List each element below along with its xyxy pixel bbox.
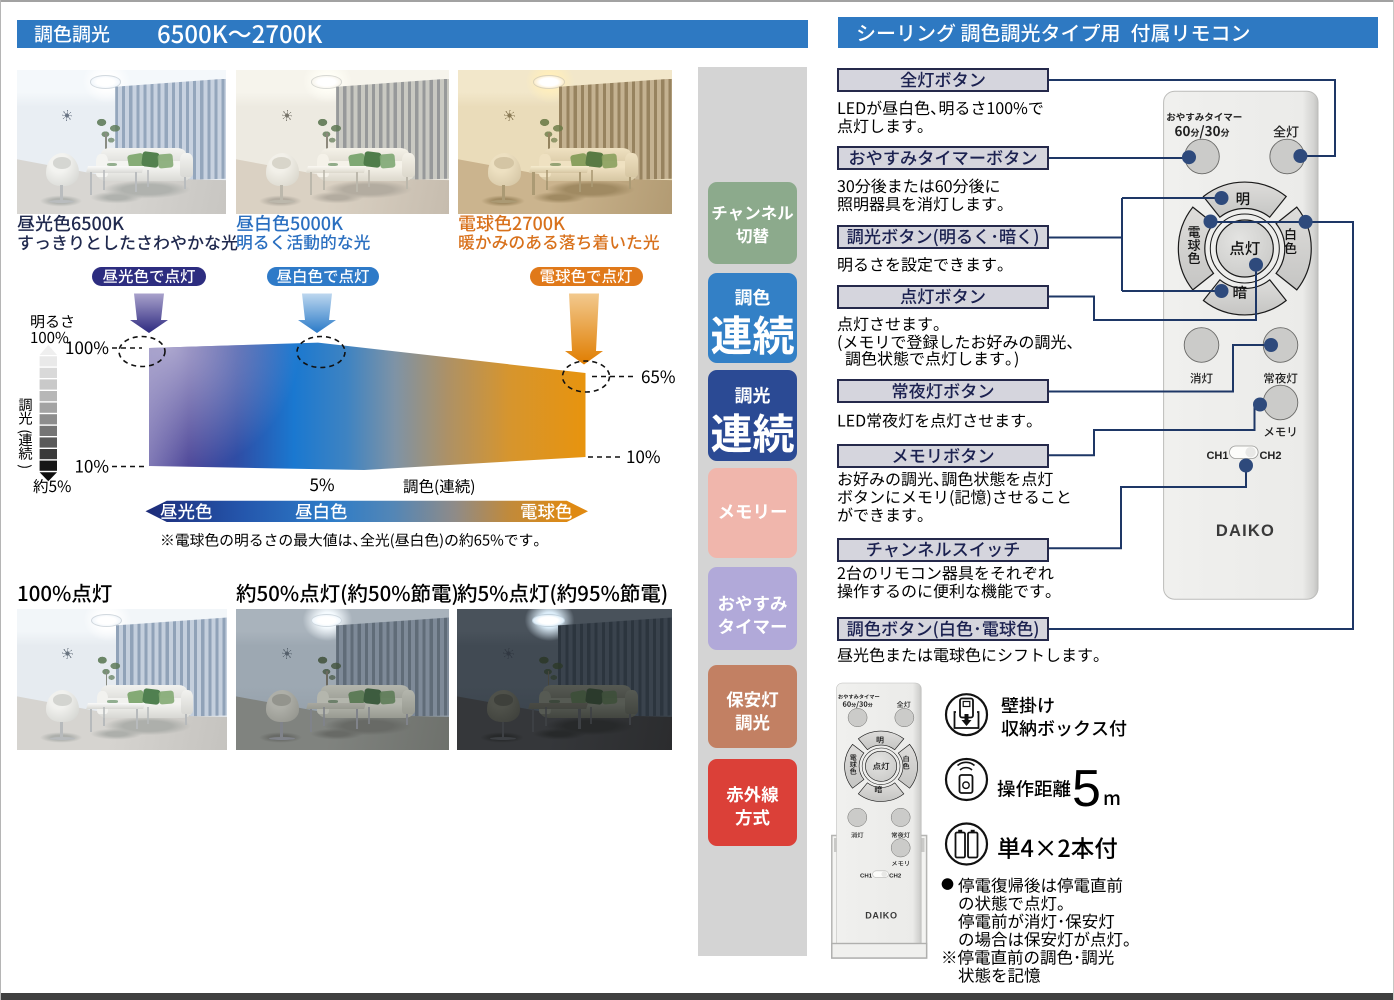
svg-text:5: 5 — [1072, 760, 1101, 818]
